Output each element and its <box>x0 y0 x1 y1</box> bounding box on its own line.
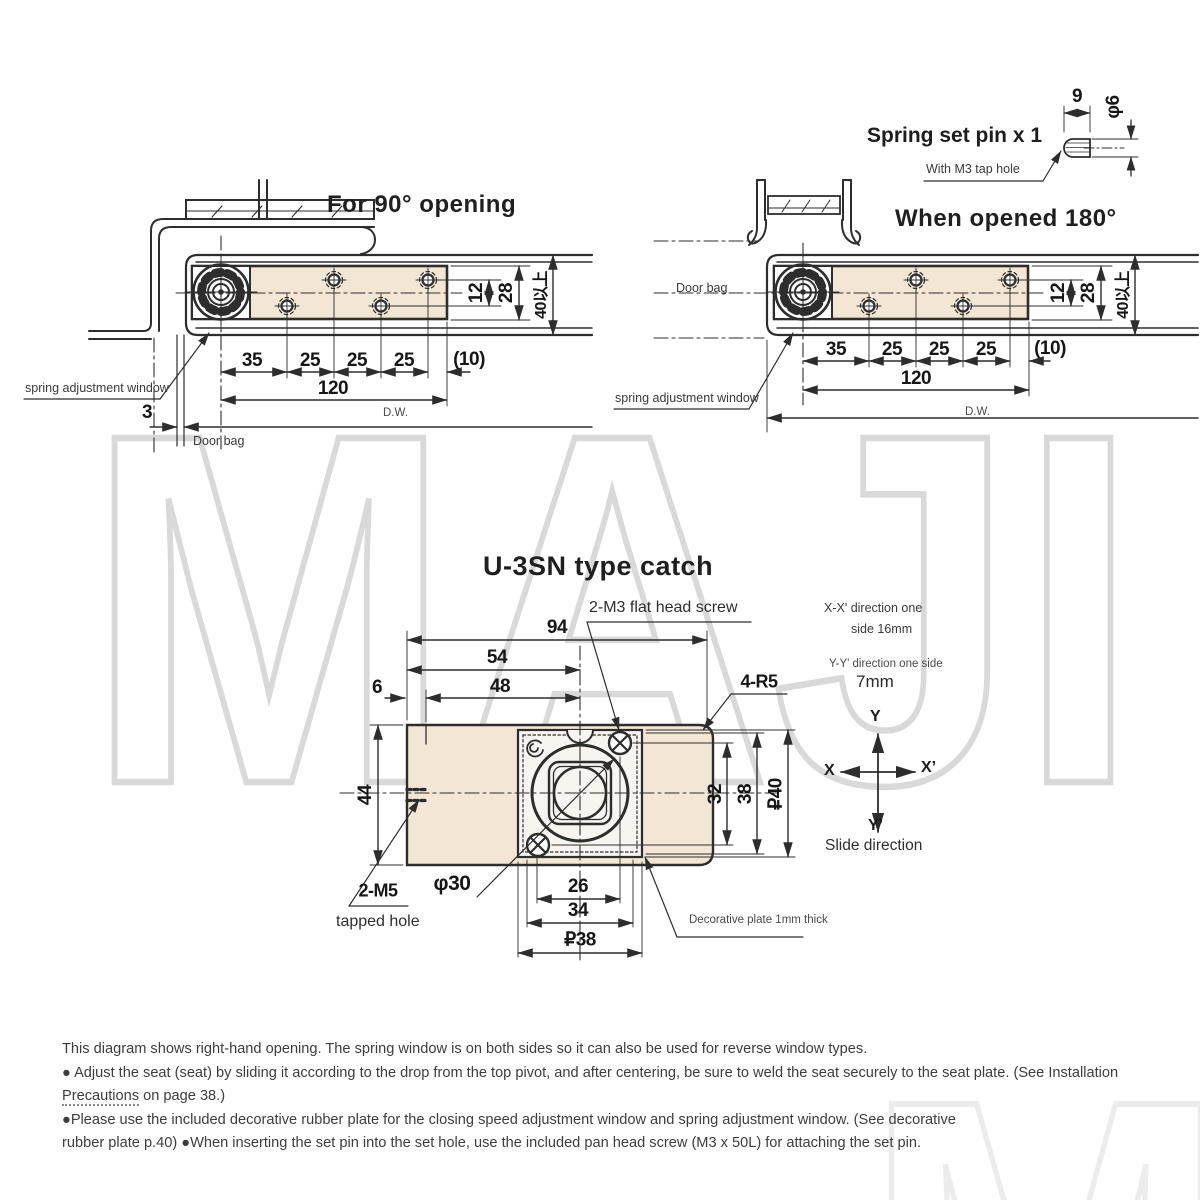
dim-25: 25 <box>882 339 902 361</box>
xx-direction-label: X-X' direction one <box>824 601 922 615</box>
dim-34: 34 <box>568 900 588 922</box>
flat-head-screw-icon <box>609 732 631 754</box>
catch-linework <box>340 622 915 964</box>
dim-phi30: φ30 <box>434 872 471 896</box>
m3-tap-hole-label: With M3 tap hole <box>926 162 1020 176</box>
dim-10: (10) <box>1034 338 1066 360</box>
tapped-hole-label: tapped hole <box>336 913 420 931</box>
axis-y-prime-label: Y’ <box>868 817 883 835</box>
catch-title: U-3SN type catch <box>483 551 713 582</box>
flat-head-screw-icon <box>527 834 549 856</box>
dim-32: 32 <box>705 784 727 804</box>
dim-3: 3 <box>142 402 152 424</box>
yy-direction-label: Y-Y' direction one side <box>829 658 943 670</box>
precautions-link: Precautions <box>62 1088 139 1106</box>
slide-direction-label: Slide direction <box>825 837 922 855</box>
spring-window-label: spring adjustment window <box>615 391 759 405</box>
dim-6: 6 <box>372 677 382 699</box>
dim-35: 35 <box>242 350 262 372</box>
dim-54: 54 <box>487 647 507 669</box>
view-180-title: When opened 180° <box>895 205 1117 233</box>
note-line-4: rubber plate p.40) ●When inserting the s… <box>62 1132 1152 1156</box>
dim-25: 25 <box>300 350 320 372</box>
axis-x-label: X <box>824 762 835 780</box>
dw-label: D.W. <box>965 406 990 418</box>
dim-9: 9 <box>1072 86 1082 108</box>
dim-12: 12 <box>1048 283 1070 303</box>
dim-40min: 40以上 <box>1109 271 1133 319</box>
footnotes: This diagram shows right-hand opening. T… <box>62 1038 1152 1156</box>
m3-screw-label: 2-M3 flat head screw <box>589 599 738 617</box>
dim-120: 120 <box>901 368 931 390</box>
xx-direction-value: side 16mm <box>851 622 912 636</box>
dim-28: 28 <box>1078 283 1100 303</box>
dim-94: 94 <box>547 617 567 639</box>
spring-set-pin-label: Spring set pin x 1 <box>867 124 1042 148</box>
dim-38: 38 <box>735 784 757 804</box>
door-bag-label: Door bag <box>676 281 727 295</box>
view-90-linework <box>24 180 592 455</box>
dim-25: 25 <box>976 339 996 361</box>
dw-label: D.W. <box>383 407 408 419</box>
spring-window-label: spring adjustment window <box>25 381 169 395</box>
dim-4r5: 4-R5 <box>740 672 777 693</box>
dim-10: (10) <box>453 349 485 371</box>
door-bag-label: Door bag <box>193 434 244 448</box>
axis-y-label: Y <box>870 708 881 726</box>
dim-sq40: ₽40 <box>765 778 788 810</box>
view-90-title: For 90° opening <box>327 191 516 219</box>
dim-48: 48 <box>490 676 510 698</box>
note-line-2: ● Adjust the seat (seat) by sliding it a… <box>62 1062 1152 1109</box>
tapped-hole-code: 2-M5 <box>358 881 397 902</box>
note-line-1: This diagram shows right-hand opening. T… <box>62 1038 1152 1062</box>
dim-28: 28 <box>496 283 518 303</box>
dim-40min: 40以上 <box>527 271 551 319</box>
decorative-plate-label: Decorative plate 1mm thick <box>689 914 828 926</box>
dim-25: 25 <box>929 339 949 361</box>
dim-35: 35 <box>826 339 846 361</box>
dim-25: 25 <box>347 350 367 372</box>
technical-drawing-page: MAJI MAJI <box>0 0 1200 1200</box>
dim-120: 120 <box>318 378 348 400</box>
note-line-3: ●Please use the included decorative rubb… <box>62 1109 1152 1133</box>
dim-26: 26 <box>568 876 588 898</box>
dim-12: 12 <box>466 283 488 303</box>
yy-direction-value: 7mm <box>856 672 894 692</box>
dim-25: 25 <box>394 350 414 372</box>
axis-x-prime-label: X’ <box>921 759 936 777</box>
dim-44: 44 <box>355 785 377 805</box>
dim-phi6: φ6 <box>1103 95 1125 118</box>
dim-sq38: ₽38 <box>564 929 596 952</box>
